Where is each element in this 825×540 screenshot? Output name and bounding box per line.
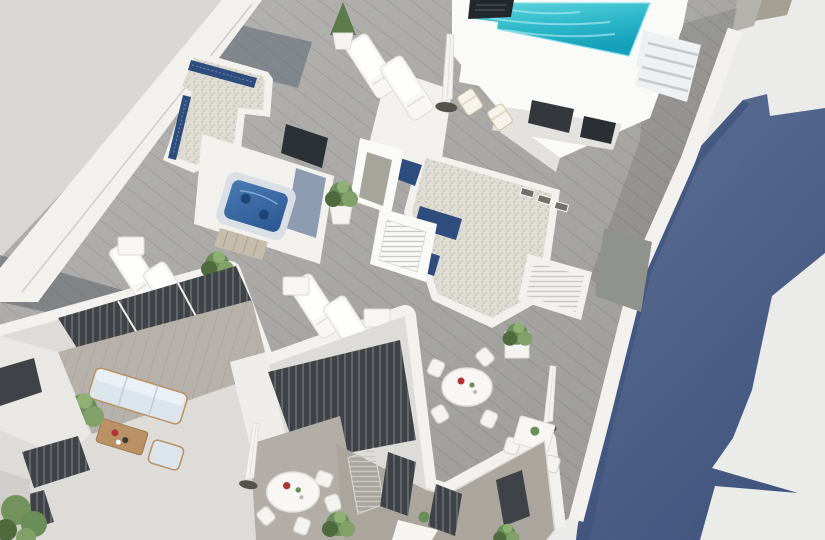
topiary-pot bbox=[333, 33, 353, 49]
table-plant bbox=[419, 512, 430, 523]
architectural-render: Daylight 3D render of a modern white apa… bbox=[0, 0, 825, 540]
side-table bbox=[118, 237, 144, 255]
side-table bbox=[283, 277, 309, 295]
round-dining-table bbox=[442, 368, 492, 406]
plant-pot bbox=[330, 206, 352, 224]
round-dining-table bbox=[267, 472, 320, 512]
